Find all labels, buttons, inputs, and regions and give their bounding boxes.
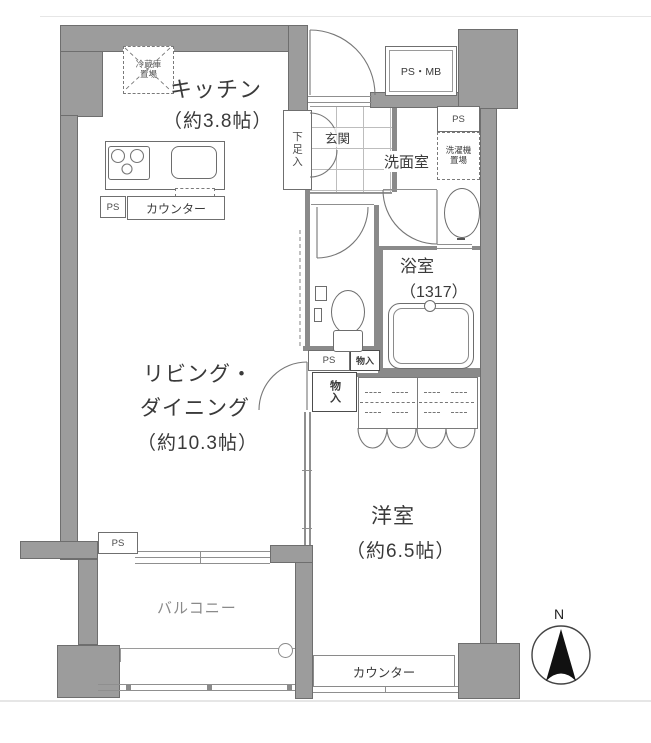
bathroom-name: 浴室	[400, 252, 434, 277]
west-counter-label: カウンター	[353, 662, 416, 681]
balcony-window-line-3	[135, 563, 270, 564]
outer-wall-top	[60, 25, 308, 52]
threshold-bath-1	[437, 244, 472, 245]
kitchen-sink	[171, 146, 217, 179]
washbasin	[444, 188, 480, 238]
storage-box-small: 物入	[350, 350, 380, 371]
entrance-tile-floor	[310, 106, 392, 194]
ps-label-kitchen: PS	[107, 202, 120, 213]
balcony-drain	[278, 643, 293, 658]
compass-needle	[546, 629, 576, 681]
closet-hanger-mark	[424, 412, 440, 413]
closet-hanger-mark	[365, 392, 381, 393]
living-size: （約10.3帖）	[137, 428, 258, 455]
closet-folding-doors	[358, 428, 475, 448]
sliding-door-panel-2	[309, 412, 311, 545]
wall-bath-top-left	[378, 246, 437, 250]
toilet-bowl	[331, 290, 365, 334]
washbasin-tick	[457, 238, 465, 240]
storage-label-vertical: 物入	[327, 380, 343, 404]
door-arc-living	[259, 362, 307, 410]
kitchen-counter-label: カウンター	[146, 200, 206, 217]
closet-hanger-mark	[392, 392, 408, 393]
outer-wall-right	[480, 108, 497, 699]
entrance-name: 玄関	[324, 128, 351, 147]
bathroom-size: （1317）	[400, 278, 468, 302]
railing-post	[207, 685, 212, 690]
refrigerator-label-2: 置場	[140, 70, 157, 80]
threshold-entrance-1	[308, 96, 372, 97]
living-name-2: ダイニング	[140, 392, 250, 422]
closet-section-left	[358, 377, 419, 429]
ps-mb-label: PS・MB	[401, 64, 441, 79]
balcony-window-tick	[200, 551, 201, 563]
balcony-window-line-2	[135, 557, 270, 558]
washing-machine-box: 洗濯機 置場	[437, 132, 480, 180]
washing-machine-label-2: 置場	[450, 156, 467, 166]
wall-genkan-washroom	[392, 108, 397, 192]
threshold-bath-2	[437, 248, 472, 249]
balcony-window-line-1	[135, 551, 270, 552]
wall-balcony-divider	[78, 559, 98, 645]
western-room-name: 洋室	[371, 500, 415, 530]
door-arc-entrance	[310, 30, 375, 95]
ps-box-washroom: PS	[437, 106, 480, 132]
entrance-step-line	[310, 192, 392, 193]
outer-wall-left	[60, 115, 78, 560]
wall-left-stub	[20, 541, 98, 559]
balcony-floor-edge-step	[120, 648, 121, 662]
compass-north-label: N	[554, 606, 564, 622]
page-top-line	[40, 16, 651, 17]
closet-hanger-mark	[365, 412, 381, 413]
ps-mb-box: PS・MB	[385, 46, 457, 96]
sliding-door-tick-2	[302, 528, 312, 529]
railing-post	[287, 685, 292, 690]
balcony-floor-edge	[120, 648, 295, 649]
threshold-toilet-door	[311, 204, 374, 205]
pillar-bottom-right	[458, 643, 520, 699]
balcony-railing-2	[98, 690, 295, 691]
pillar-top-right	[458, 29, 518, 109]
ps-box-living: PS	[98, 532, 138, 554]
ps-box-kitchen: PS	[100, 196, 126, 218]
storage-label-small: 物入	[356, 354, 374, 367]
shoe-cabinet-box: 下足入	[283, 110, 312, 190]
west-counter-box: カウンター	[313, 655, 455, 687]
refrigerator-box: 冷蔵庫 置場	[123, 46, 174, 94]
closet-hanger-mark	[451, 412, 467, 413]
west-window-line-2	[313, 692, 458, 693]
compass-circle	[532, 626, 590, 684]
closet-hanger-mark	[392, 412, 408, 413]
toilet-controller	[314, 308, 322, 322]
closet-hanger-pipe	[360, 402, 415, 403]
washroom-name: 洗面室	[384, 151, 429, 172]
wall-toilet-left	[305, 188, 310, 346]
door-arc-washroom	[383, 190, 437, 244]
ps-label-living: PS	[112, 538, 125, 549]
threshold-washroom-door	[383, 189, 437, 190]
bathtub-inner	[393, 308, 469, 364]
kitchen-counter-label-box: カウンター	[127, 196, 225, 220]
floor-plan: 下足入 PS・MB PS 洗濯機 置場 冷蔵庫 置場 PS 物入 物入 PS カ…	[0, 0, 651, 743]
kitchen-name: キッチン	[170, 72, 262, 104]
closet-hanger-mark	[451, 392, 467, 393]
door-arc-toilet	[317, 207, 368, 258]
living-name-1: リビング・	[143, 358, 253, 388]
balcony-name: バルコニー	[157, 597, 237, 618]
kitchen-stove	[108, 146, 150, 180]
ps-box-toilet: PS	[308, 350, 350, 371]
sliding-door-tick-1	[302, 470, 312, 471]
ps-label-washroom: PS	[452, 114, 465, 125]
compass	[532, 626, 590, 684]
toilet-tank	[333, 330, 363, 352]
shoe-cabinet-label: 下足入	[290, 131, 305, 169]
kitchen-size: （約3.8帖）	[163, 106, 272, 133]
western-room-size: （約6.5帖）	[346, 536, 455, 563]
wall-bath-top-right	[472, 246, 480, 250]
closet-hanger-mark	[424, 392, 440, 393]
closet-hanger-pipe	[419, 402, 474, 403]
ground-line	[0, 700, 651, 702]
wall-living-west-stub	[270, 545, 313, 563]
toilet-paper-holder	[315, 286, 327, 301]
storage-box-vertical: 物入	[312, 372, 357, 412]
railing-post	[126, 685, 131, 690]
closet-section-right	[417, 377, 478, 429]
sliding-door-panel-1	[304, 412, 306, 545]
wall-westroom-left	[295, 548, 313, 699]
threshold-entrance-2	[308, 102, 372, 103]
ps-label-toilet: PS	[323, 355, 336, 366]
